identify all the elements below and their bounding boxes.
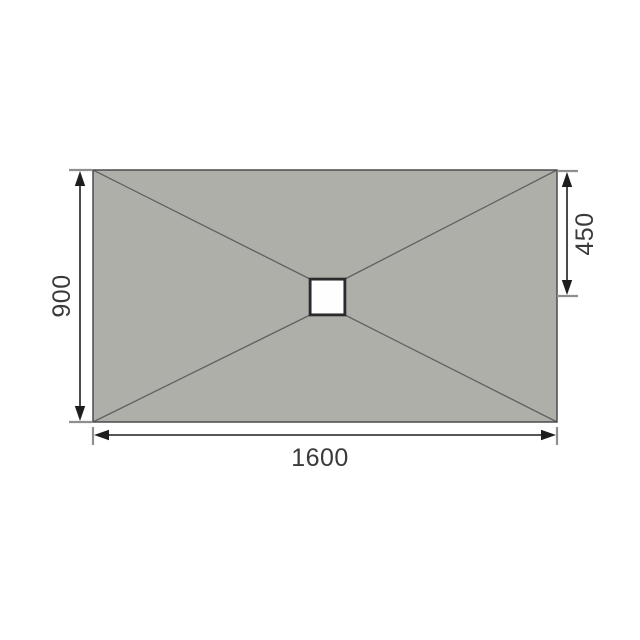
width-dimension-label: 1600 <box>291 444 349 472</box>
offset-dimension-label: 450 <box>571 212 599 255</box>
height-dimension-label: 900 <box>48 274 76 317</box>
drain-square-fill <box>312 281 344 314</box>
shower-tray-technical-drawing: 900 450 1600 <box>0 0 640 640</box>
drawing-canvas: 900 450 1600 <box>0 0 640 640</box>
